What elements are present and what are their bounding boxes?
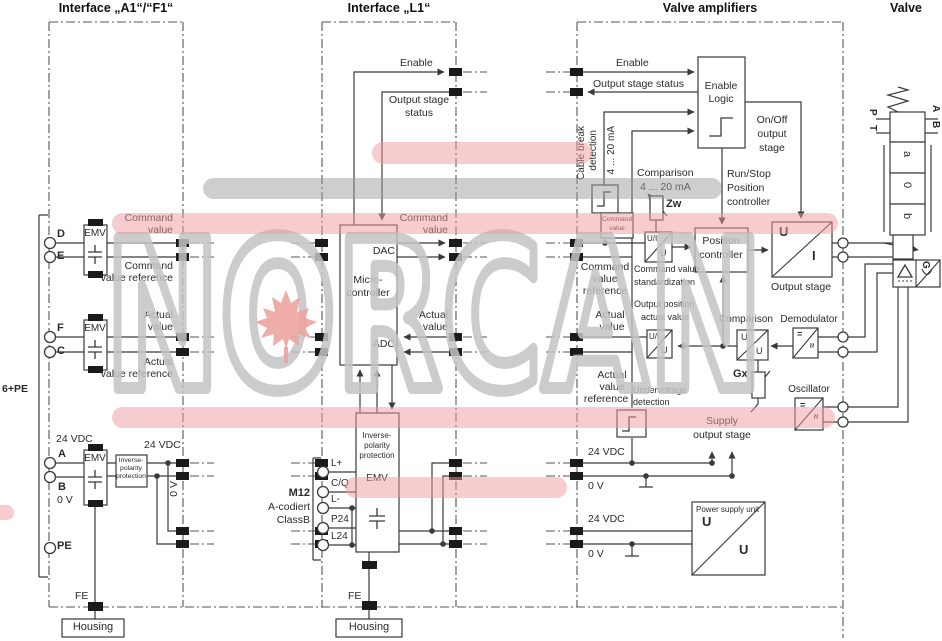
label-24vdc: 24 VDC	[588, 446, 625, 458]
undervoltage-label: detection	[633, 397, 670, 408]
transducer-g: G	[919, 261, 931, 269]
output-stage-i: I	[812, 250, 816, 262]
inverse-polarity-label: protection	[116, 473, 146, 481]
inverse-polarity-label: polarity	[120, 465, 142, 473]
dac-label: DAC	[373, 245, 395, 257]
position-b: b	[901, 213, 913, 219]
psu-u-out: U	[739, 544, 748, 556]
cable-break-detector-box	[592, 185, 618, 213]
valve-position-a	[890, 142, 925, 173]
eq-symbol: =	[800, 400, 805, 411]
psu-u-in: U	[702, 516, 711, 528]
label-0v: 0 V	[57, 494, 73, 506]
m12-coding-label: A-codiert	[268, 501, 310, 513]
label-actual-value: Actual	[144, 309, 173, 321]
undervoltage-label: Undervoltage	[633, 385, 687, 396]
position-0: 0	[901, 182, 913, 188]
label-actual-value: value	[599, 321, 624, 333]
valve-position-b	[890, 204, 925, 235]
supply-output-stage-label: Supply	[706, 415, 738, 427]
emv-label: EMV	[84, 228, 106, 240]
label-actual-value-ref: Actual	[597, 369, 626, 381]
power-supply-label: Power supply unit	[696, 505, 759, 514]
inverse-polarity-label: Inverse-	[363, 431, 392, 440]
housing-label: Housing	[349, 621, 389, 633]
cable-break-label: detection	[588, 130, 600, 171]
label-command-value-ref: reference	[583, 285, 627, 297]
u-symbol: U	[741, 332, 748, 343]
label-run-stop: Run/Stop	[727, 168, 771, 180]
cable-break-range: 4 ... 20 mA	[606, 126, 618, 174]
header-interface-a1f1: Interface „A1“/“F1“	[59, 1, 174, 15]
standardization-label: standardization	[634, 277, 695, 288]
pin-lminus: L-	[331, 494, 340, 506]
adc-label: ADC	[373, 338, 395, 350]
label-24vdc: 24 VDC	[56, 433, 93, 445]
supply-output-stage-label: output stage	[693, 429, 751, 441]
comparison-zw-range: 4 ... 20 mA	[640, 181, 691, 193]
pin-lplus: L+	[331, 458, 342, 470]
command-value-tag: Command	[602, 216, 632, 224]
demodulator-label: Demodulator	[780, 314, 837, 326]
label-run-stop: Position	[727, 182, 764, 194]
terminal-a: A	[58, 448, 66, 460]
oscillator-label: Oscillator	[788, 384, 830, 396]
valve-port-box	[890, 112, 925, 142]
position-controller-label: Position	[702, 235, 739, 247]
m12-class-label: ClassB	[277, 514, 310, 526]
label-actual-value: Actual	[419, 309, 448, 321]
label-actual-value-ref: Actual	[144, 356, 173, 368]
terminal-d: D	[57, 228, 65, 240]
output-stage-u: U	[779, 226, 788, 238]
comparison-label: Comparison	[719, 314, 773, 326]
pin-p24: P24	[331, 514, 349, 526]
label-actual-value: Actual	[595, 309, 624, 321]
label-command-value: Command	[125, 212, 173, 224]
pin-l24: L24	[331, 531, 348, 543]
cable-break-label: Cable break	[576, 126, 588, 180]
position-controller-label: controller	[699, 249, 742, 261]
label-output-stage-status: status	[405, 107, 433, 119]
microcontroller-label: controller	[346, 287, 389, 299]
solenoid-box	[893, 235, 913, 259]
output-position-label: Output position	[634, 299, 695, 310]
u-symbol: U	[756, 346, 763, 357]
label-actual-value: value	[148, 321, 173, 333]
label-command-value-ref: value	[592, 273, 617, 285]
valve-position-0	[890, 173, 925, 204]
comparison-zw-label: Comparison	[637, 167, 694, 179]
output-position-label: actual value	[641, 312, 689, 323]
enable-logic-label: Logic	[708, 93, 733, 105]
label-command-value: Command	[400, 212, 448, 224]
label-enable: Enable	[616, 57, 649, 69]
terminal-f: F	[57, 322, 64, 334]
eq-symbol: =	[797, 329, 802, 340]
emv-label: EMV	[366, 473, 388, 485]
position-a: a	[901, 151, 913, 157]
label-24vdc: 24 VDC	[588, 513, 625, 525]
header-valve: Valve	[890, 1, 922, 15]
label-output-stage-status: Output stage	[389, 94, 449, 106]
label-fe: FE	[348, 590, 361, 602]
terminal-pe: PE	[57, 540, 72, 552]
inverse-polarity-label: polarity	[364, 441, 390, 450]
label-run-stop: controller	[727, 196, 770, 208]
gx-potentiometer	[752, 372, 765, 398]
label-24vdc-out: 24 VDC	[144, 439, 181, 451]
label-command-value: value	[423, 224, 448, 236]
label-command-value-ref: Command	[581, 261, 629, 273]
zw-label: Zw	[666, 198, 681, 210]
label-actual-value-ref: value	[599, 381, 624, 393]
label-command-value: value	[148, 224, 173, 236]
label-actual-value-ref: reference	[584, 393, 628, 405]
label-0v: 0 V	[588, 548, 604, 560]
housing-label: Housing	[73, 621, 113, 633]
label-command-value-ref: Command	[125, 260, 173, 272]
terminal-c: C	[57, 345, 65, 357]
ui-symbol: U/I	[647, 234, 657, 243]
emv-label: EMV	[84, 323, 106, 335]
undervoltage-box	[617, 410, 646, 437]
label-command-value-ref: value reference	[101, 272, 173, 284]
port-t: T	[866, 125, 878, 131]
zw-potentiometer	[650, 196, 663, 220]
output-stage-label: Output stage	[771, 281, 831, 293]
gx-label: Gx	[733, 368, 748, 380]
terminal-e: E	[57, 250, 64, 262]
label-output-stage-status: Output stage status	[593, 78, 684, 90]
enable-logic-label: Enable	[705, 80, 738, 92]
label-actual-value: value	[423, 321, 448, 333]
emv-label: EMV	[84, 453, 106, 465]
u-symbol: U	[660, 248, 667, 259]
terminal-b: B	[58, 481, 66, 493]
port-p: P	[866, 109, 878, 116]
standardization-label: Command value	[634, 264, 700, 275]
approx-symbol: ≈	[810, 414, 822, 419]
label-onoff-output-stage: On/Off	[757, 114, 788, 126]
label-enable: Enable	[400, 57, 433, 69]
label-0v-out: 0 V	[168, 481, 180, 497]
header-valve-amplifiers: Valve amplifiers	[663, 1, 758, 15]
label-onoff-output-stage: output	[757, 128, 786, 140]
microcontroller-label: Micro-	[353, 274, 382, 286]
command-value-tag: value	[609, 225, 625, 233]
m12-label: M12	[289, 487, 310, 499]
label-0v: 0 V	[588, 480, 604, 492]
approx-symbol: ≈	[806, 343, 818, 348]
header-interface-l1: Interface „L1“	[348, 1, 431, 15]
cable-designation: 6+PE	[2, 383, 28, 395]
u-symbol: U	[661, 345, 668, 356]
ui-symbol: U/I	[649, 332, 659, 341]
label-fe: FE	[75, 590, 88, 602]
label-actual-value-ref: value reference	[101, 368, 173, 380]
label-onoff-output-stage: stage	[759, 142, 785, 154]
port-a: A	[929, 105, 941, 112]
connector-pads	[88, 68, 583, 611]
inverse-polarity-label: protection	[359, 451, 394, 460]
schematic-diagram: Interface „A1“/“F1“ Interface „L1“ Valve…	[0, 0, 942, 641]
port-b: B	[929, 121, 941, 128]
inverse-polarity-label: Inverse-	[119, 457, 144, 465]
pin-cq: C/Q	[331, 478, 349, 490]
